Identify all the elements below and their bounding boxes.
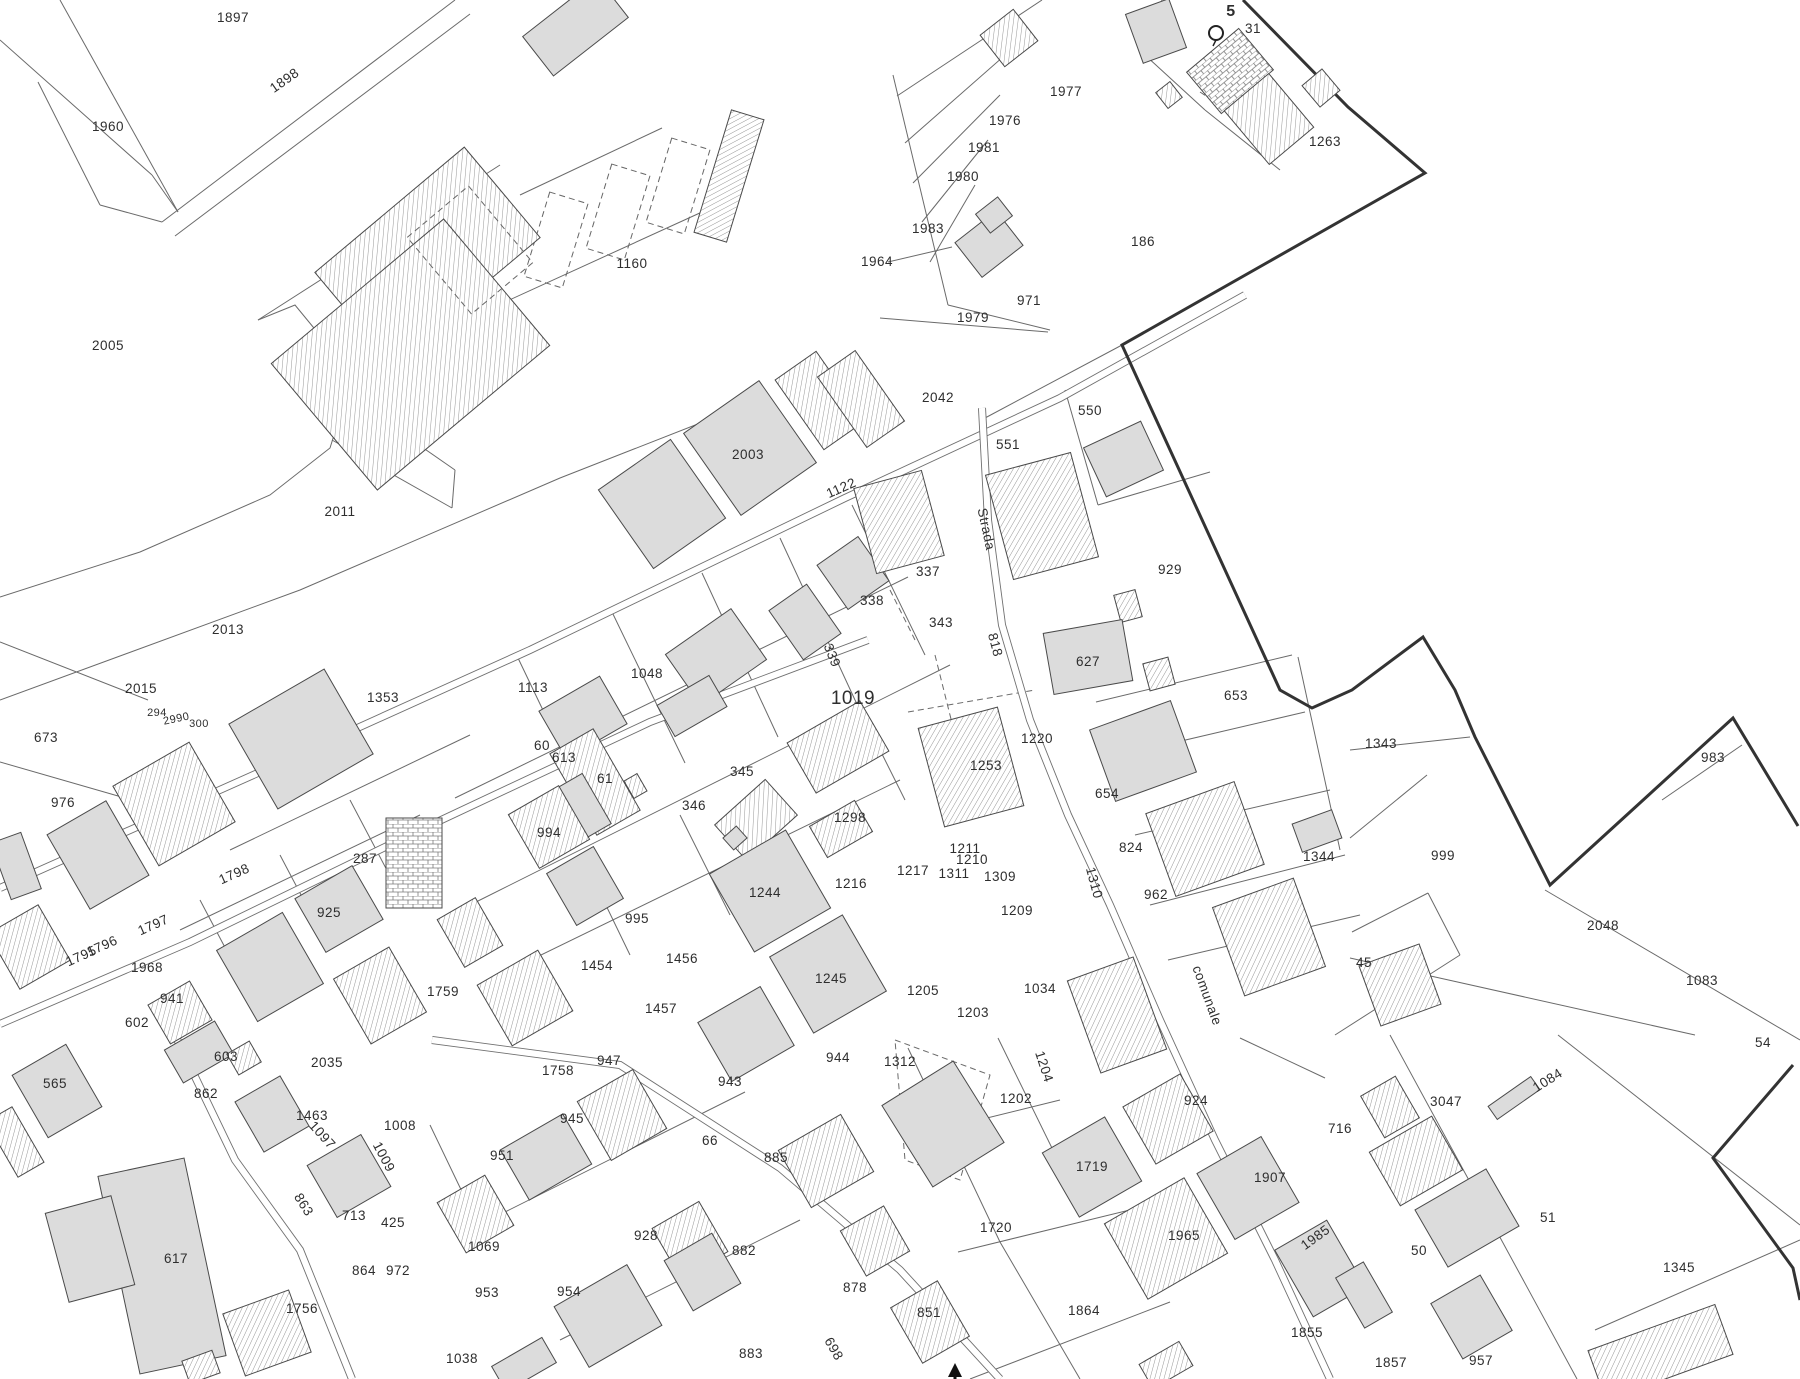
- parcel-label-1204: 1204: [1032, 1049, 1056, 1084]
- parcel-label-994: 994: [537, 825, 561, 840]
- parcel-line: [888, 247, 952, 262]
- parcel-label-1038: 1038: [446, 1351, 478, 1366]
- sheet-boundary-line: [1122, 0, 1798, 885]
- parcel-label-346: 346: [682, 798, 706, 813]
- parcel-line: [1350, 775, 1427, 838]
- parcel-label-929: 929: [1158, 562, 1182, 577]
- parcel-label-954: 954: [557, 1284, 581, 1299]
- parcel-label-551: 551: [996, 437, 1020, 452]
- parcel-label-976: 976: [51, 795, 75, 810]
- parcel-label-1084: 1084: [1530, 1065, 1565, 1095]
- parcel-label-1720: 1720: [980, 1220, 1012, 1235]
- parcel-label-1298: 1298: [834, 810, 866, 825]
- building: [547, 847, 624, 926]
- parcel-label-1977: 1977: [1050, 84, 1082, 99]
- parcel-label-925: 925: [317, 905, 341, 920]
- parcel-label-713: 713: [342, 1208, 366, 1223]
- building: [554, 1265, 662, 1368]
- parcel-label-1008: 1008: [384, 1118, 416, 1133]
- parcel-label-338: 338: [860, 593, 884, 608]
- building: [1084, 421, 1164, 497]
- parcel-label-957: 957: [1469, 1353, 1493, 1368]
- parcel-label-673: 673: [34, 730, 58, 745]
- parcel-label-550: 550: [1078, 403, 1102, 418]
- parcel-label-1343: 1343: [1365, 736, 1397, 751]
- parcel-label-945: 945: [560, 1111, 584, 1126]
- parcel-label-947: 947: [597, 1053, 621, 1068]
- parcel-label-613: 613: [552, 750, 576, 765]
- building: [1104, 1178, 1227, 1299]
- parcel-label-995: 995: [625, 911, 649, 926]
- parcel-lines: [0, 0, 1800, 1379]
- parcel-label-1456: 1456: [666, 951, 698, 966]
- building: [229, 669, 373, 809]
- building: [1213, 878, 1326, 996]
- dashed-parcel-line: [890, 590, 915, 640]
- parcel-label-654: 654: [1095, 786, 1119, 801]
- parcel-label-1976: 1976: [989, 113, 1021, 128]
- parcel-label-1756: 1756: [286, 1301, 318, 1316]
- building: [778, 1114, 873, 1207]
- parcel-label-1048: 1048: [631, 666, 663, 681]
- building: [1125, 0, 1186, 63]
- parcel-label-1964: 1964: [861, 254, 893, 269]
- parcel-label-1457: 1457: [645, 1001, 677, 1016]
- parcel-label-1244: 1244: [749, 885, 781, 900]
- parcel-label-1795: 1795: [63, 943, 98, 970]
- parcel-line: [1545, 890, 1800, 1040]
- parcel-label-1310: 1310: [1083, 865, 1106, 900]
- parcel-line: [505, 212, 702, 302]
- parcel-label-882: 882: [732, 1243, 756, 1258]
- parcel-label-3047: 3047: [1430, 1094, 1462, 1109]
- parcel-line: [452, 470, 455, 508]
- building: [1114, 590, 1142, 623]
- parcel-label-1220: 1220: [1021, 731, 1053, 746]
- parcel-line: [1240, 1038, 1325, 1078]
- parcel-label-1968: 1968: [131, 960, 163, 975]
- building: [891, 1281, 970, 1363]
- cadastral-map-canvas[interactable]: 1897189819602005116053112631977197619811…: [0, 0, 1800, 1379]
- building: [217, 912, 324, 1021]
- parcel-label-1864: 1864: [1068, 1303, 1100, 1318]
- building: [1123, 1074, 1213, 1164]
- parcel-line: [893, 75, 948, 305]
- parcel-label-1798: 1798: [216, 861, 251, 888]
- building: [492, 1337, 557, 1379]
- parcel-label-31: 31: [1245, 21, 1261, 36]
- parcel-label-943: 943: [718, 1074, 742, 1089]
- parcel-label-425: 425: [381, 1215, 405, 1230]
- parcel-label-343: 343: [929, 615, 953, 630]
- parcel-label-1209: 1209: [1001, 903, 1033, 918]
- building: [1197, 1137, 1299, 1240]
- parcel-label-2035: 2035: [311, 1055, 343, 1070]
- building-dashed-outline: [586, 164, 650, 260]
- building: [0, 905, 70, 989]
- building: [1292, 810, 1342, 853]
- parcel-label-928: 928: [634, 1228, 658, 1243]
- building: [980, 9, 1038, 66]
- parcel-label-1345: 1345: [1663, 1260, 1695, 1275]
- building: [437, 898, 503, 968]
- parcel-label-1019: 1019: [831, 688, 875, 709]
- parcel-label-1217: 1217: [897, 863, 929, 878]
- parcel-label-2011: 2011: [324, 504, 355, 519]
- parcel-label-339: 339: [821, 641, 844, 669]
- parcel-label-1907: 1907: [1254, 1170, 1286, 1185]
- parcel-line: [1428, 893, 1460, 955]
- building: [334, 947, 427, 1044]
- parcel-label-1245: 1245: [815, 971, 847, 986]
- parcel-label-287: 287: [353, 851, 377, 866]
- parcel-label-1855: 1855: [1291, 1325, 1323, 1340]
- parcel-label-1759: 1759: [427, 984, 459, 999]
- building: [882, 1061, 1004, 1187]
- parcel-line: [612, 612, 685, 763]
- parcel-label-602: 602: [125, 1015, 149, 1030]
- parcel-label-1960: 1960: [92, 119, 124, 134]
- parcel-line: [60, 0, 178, 212]
- parcel-label-51: 51: [1540, 1210, 1556, 1225]
- survey-point-tick: [1213, 40, 1216, 46]
- parcel-label-603: 603: [214, 1049, 238, 1064]
- parcel-label-617: 617: [164, 1251, 188, 1266]
- parcel-label-1719: 1719: [1076, 1159, 1108, 1174]
- parcel-label-953: 953: [475, 1285, 499, 1300]
- parcel-label-2013: 2013: [212, 622, 244, 637]
- parcel-label-54: 54: [1755, 1035, 1771, 1050]
- parcel-label-878: 878: [843, 1280, 867, 1295]
- parcel-line: [152, 175, 178, 212]
- parcel-label-565: 565: [43, 1076, 67, 1091]
- parcel-label-627: 627: [1076, 654, 1100, 669]
- building: [787, 701, 889, 793]
- parcel-label-1981: 1981: [968, 140, 1000, 155]
- parcel-label-66: 66: [702, 1133, 718, 1148]
- parcel-label-1113: 1113: [518, 680, 548, 695]
- parcel-label-61: 61: [597, 771, 613, 786]
- parcel-label-1983: 1983: [912, 221, 944, 236]
- parcel-label-862: 862: [194, 1086, 218, 1101]
- parcel-label-2015: 2015: [125, 681, 157, 696]
- parcel-label-1205: 1205: [907, 983, 939, 998]
- parcel-label-45: 45: [1356, 955, 1372, 970]
- parcel-label-1263: 1263: [1309, 134, 1341, 149]
- parcel-line: [100, 205, 162, 222]
- sheet-boundary-line: [1713, 1065, 1800, 1300]
- parcel-label-951: 951: [490, 1148, 514, 1163]
- building: [809, 800, 872, 857]
- building: [477, 950, 573, 1046]
- parcel-label-337: 337: [916, 564, 940, 579]
- building: [694, 110, 764, 242]
- parcel-line: [38, 82, 100, 205]
- parcel-label-1965: 1965: [1168, 1228, 1200, 1243]
- parcel-label-1203: 1203: [957, 1005, 989, 1020]
- parcel-label-1463: 1463: [296, 1108, 328, 1123]
- survey-point-icon: [1209, 26, 1223, 40]
- building: [1588, 1305, 1733, 1379]
- parcel-line: [1558, 1035, 1800, 1225]
- parcel-label-864: 864: [352, 1263, 376, 1278]
- parcel-label-885: 885: [764, 1150, 788, 1165]
- parcel-label-2048: 2048: [1587, 918, 1619, 933]
- parcel-label-1898: 1898: [267, 65, 302, 96]
- building: [1146, 782, 1264, 897]
- parcel-label-1980: 1980: [947, 169, 979, 184]
- parcel-label-851: 851: [917, 1305, 941, 1320]
- parcel-label-1897: 1897: [217, 10, 249, 25]
- parcel-label-1309: 1309: [984, 869, 1016, 884]
- parcel-label-1758: 1758: [542, 1063, 574, 1078]
- parcel-label-924: 924: [1184, 1093, 1208, 1108]
- parcel-label-1979: 1979: [957, 310, 989, 325]
- tree-icon: [948, 1363, 962, 1379]
- parcel-label-1202: 1202: [1000, 1091, 1032, 1106]
- building: [986, 452, 1099, 579]
- parcel-line: [1352, 893, 1428, 932]
- parcel-label-300: 300: [189, 718, 209, 730]
- parcel-label-2003: 2003: [732, 447, 764, 462]
- parcel-label-653: 653: [1224, 688, 1248, 703]
- parcel-label-1210: 1210: [956, 852, 988, 867]
- parcel-label-999: 999: [1431, 848, 1455, 863]
- parcel-label-972: 972: [386, 1263, 410, 1278]
- parcel-label-1312: 1312: [884, 1054, 916, 1069]
- parcel-label-1353: 1353: [367, 690, 399, 705]
- parcel-line: [0, 40, 152, 175]
- building: [1067, 957, 1166, 1073]
- parcel-label-1034: 1034: [1024, 981, 1056, 996]
- dashed-parcel-line: [908, 690, 1035, 712]
- parcel-label-883: 883: [739, 1346, 763, 1361]
- building: [1143, 657, 1175, 691]
- map-svg: 1897189819602005116053112631977197619811…: [0, 0, 1800, 1379]
- parcel-label-1797: 1797: [135, 912, 170, 939]
- parcel-label-1160: 1160: [616, 256, 647, 271]
- building: [500, 1114, 591, 1200]
- parcel-label-1216: 1216: [835, 876, 867, 891]
- parcel-label-971: 971: [1017, 293, 1041, 308]
- parcel-label-1097: 1097: [306, 1118, 339, 1152]
- parcel-label-345: 345: [730, 764, 754, 779]
- parcel-label-1857: 1857: [1375, 1355, 1407, 1370]
- parcel-label-2042: 2042: [922, 390, 954, 405]
- parcel-label-1253: 1253: [970, 758, 1002, 773]
- building: [698, 987, 794, 1082]
- parcel-label-863: 863: [291, 1190, 316, 1218]
- parcel-line: [0, 762, 125, 798]
- parcel-label-1083: 1083: [1686, 973, 1718, 988]
- parcel-label-2005: 2005: [92, 338, 124, 353]
- parcel-label-186: 186: [1131, 234, 1155, 249]
- parcel-label-962: 962: [1144, 887, 1168, 902]
- parcel-label-1344: 1344: [1303, 849, 1335, 864]
- parcel-label-944: 944: [826, 1050, 850, 1065]
- parcel-label-941: 941: [160, 991, 184, 1006]
- parcel-label-698: 698: [821, 1335, 846, 1363]
- parcel-label-716: 716: [1328, 1121, 1352, 1136]
- parcel-label-1069: 1069: [468, 1239, 500, 1254]
- parcel-label-1454: 1454: [581, 958, 613, 973]
- parcel-label-983: 983: [1701, 750, 1725, 765]
- parcel-line: [520, 128, 662, 195]
- building: [523, 0, 629, 76]
- building: [12, 1044, 102, 1137]
- parcel-line: [162, 0, 455, 222]
- building: [1302, 69, 1340, 107]
- parcel-label-Strada: Strada: [975, 507, 999, 552]
- parcel-label-50: 50: [1411, 1243, 1427, 1258]
- parcel-label-comunale: comunale: [1189, 964, 1224, 1028]
- building: [1139, 1341, 1193, 1379]
- parcel-label-824: 824: [1119, 840, 1143, 855]
- parcel-label-60: 60: [534, 738, 550, 753]
- parcel-label-1311: 1311: [938, 866, 969, 881]
- building: [1431, 1275, 1512, 1359]
- parcel-label-5: 5: [1226, 3, 1235, 20]
- building: [386, 818, 442, 908]
